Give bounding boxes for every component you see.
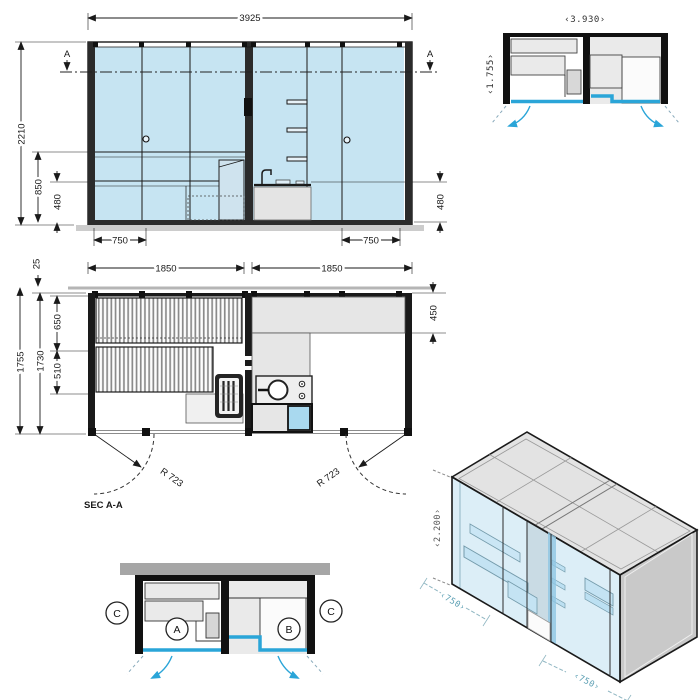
iso-door-left-label: ‹750› (438, 590, 467, 613)
schematic2-door-swings (127, 656, 323, 678)
dim-bench-height-480-left: 480 (53, 194, 64, 210)
front-elevation: 3925 2210 850 480 480 (15, 13, 447, 247)
heater-elevation (219, 160, 244, 220)
technical-drawing-sheet: 3925 2210 850 480 480 (0, 0, 700, 700)
sauna-plan (96, 298, 243, 423)
schematic-width-label: ‹3.930› (564, 15, 605, 25)
door-handle-left (143, 136, 149, 142)
room-a-marker: A (173, 624, 180, 636)
schematic-divider-wall (583, 33, 590, 104)
iso-height-label: ‹2.200› (433, 508, 443, 547)
bench-upper-slats (96, 298, 242, 343)
schematic-door-swings (492, 106, 679, 126)
drawing-svg: 3925 2210 850 480 480 (0, 0, 700, 700)
section-c-right: C (327, 606, 335, 618)
door-radius-right: R 723 (315, 466, 342, 490)
sink-basin (269, 381, 288, 400)
shelf-1 (287, 100, 307, 104)
dim-door-width-right: 750 (363, 236, 379, 247)
door-handle-right (344, 137, 350, 143)
dim-counter-450: 450 (429, 305, 440, 321)
schematic2-divider (221, 575, 229, 654)
section-c-left: C (113, 608, 121, 620)
door-latch (244, 98, 252, 116)
dim-depth-1730: 1730 (36, 350, 47, 371)
dim-door-width-left: 750 (112, 236, 128, 247)
dim-module-right: 1850 (321, 264, 342, 275)
ground-strip (76, 225, 424, 231)
section-marker-a-left: A (64, 49, 71, 60)
plan-divider-wall (245, 293, 252, 434)
dim-bench-height-480-right: 480 (436, 194, 447, 210)
dim-wall-gap-25: 25 (32, 259, 43, 270)
door-jambs (88, 428, 412, 436)
room-b-marker: B (285, 624, 292, 636)
center-post (245, 42, 253, 225)
shelf-3 (287, 157, 307, 161)
dim-overall-width: 3925 (239, 13, 260, 24)
dim-bench-650: 650 (53, 314, 64, 330)
door-radius-left: R 723 (158, 466, 185, 490)
floor-plan: 1850 1850 25 1755 1730 650 510 450 (15, 259, 446, 511)
base-cabinet (254, 187, 311, 220)
dim-depth-1755: 1755 (16, 351, 27, 372)
plan-schematic: ‹3.930› ‹1.755› (486, 15, 679, 126)
bench-lower-slats (96, 347, 213, 392)
dim-bench-510: 510 (53, 363, 64, 379)
shower-tray (288, 406, 310, 430)
schematic-depth-label: ‹1.755› (486, 53, 496, 94)
iso-door-right-label: ‹750› (572, 671, 602, 693)
isometric-view: ‹2.200› ‹750› ‹750› (420, 432, 697, 700)
plan-door-swings: R 723 R 723 (94, 434, 406, 494)
dim-overall-height: 2210 (17, 123, 28, 144)
shelf-2 (287, 128, 307, 132)
shower-plan (252, 297, 405, 432)
section-schematic: C C A B (106, 563, 342, 678)
dim-bench-height-850: 850 (34, 179, 45, 195)
section-marker-a-right: A (427, 49, 434, 60)
dim-module-left: 1850 (155, 264, 176, 275)
host-wall-bar (120, 563, 330, 575)
section-label: SEC A-A (84, 500, 123, 511)
counter-strip (252, 297, 405, 333)
